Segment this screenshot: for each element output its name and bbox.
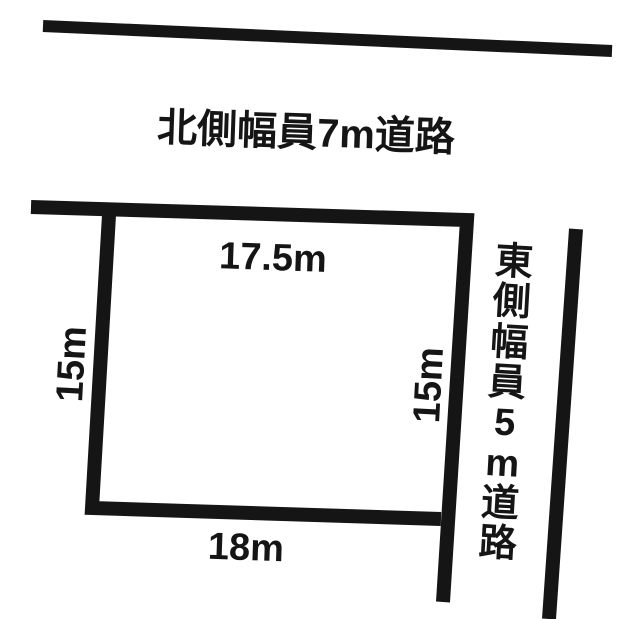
east-road-edge-line [549, 229, 576, 619]
east-road-label-char: 員 [487, 361, 527, 405]
east-road-label: 東 側 幅 員 5 m 道 路 [477, 240, 536, 566]
east-road-label-char: m [484, 442, 520, 486]
east-road-label-char: 路 [478, 522, 519, 566]
dimension-right: 15m [406, 346, 452, 424]
dimension-bottom: 18m [207, 526, 284, 571]
east-road-label-char: 側 [491, 280, 532, 324]
dimension-top: 17.5m [218, 235, 327, 281]
plot-sketch-canvas: 北側幅員7m道路 17.5m 15m 15m 18m 東 側 幅 員 5 m 道… [0, 0, 640, 619]
north-road-edge-line [43, 26, 612, 51]
east-road-label-char: 5 [493, 401, 517, 444]
land-plot-diagram: 北側幅員7m道路 17.5m 15m 15m 18m 東 側 幅 員 5 m 道… [0, 0, 640, 619]
north-road-label: 北側幅員7m道路 [156, 106, 456, 160]
east-road-label-char: 東 [494, 240, 534, 284]
dimension-left: 15m [49, 325, 95, 403]
east-road-label-char: 幅 [489, 321, 529, 365]
east-road-label-char: 道 [480, 482, 520, 526]
